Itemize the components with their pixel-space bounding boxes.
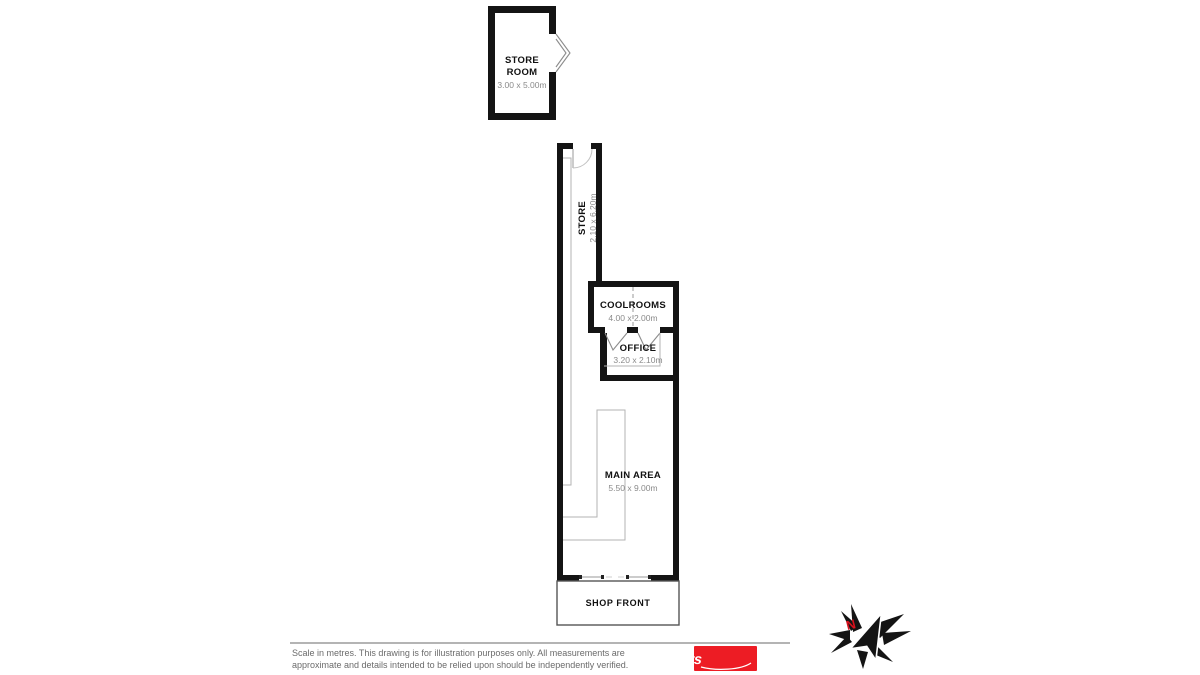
elders-logo-text: Elders [657,652,702,668]
store-dims: 2.10 x 6.20m [588,193,598,242]
store-room-label-line2: ROOM [507,67,538,78]
double-door-swing-icon [556,39,566,67]
disclaimer-line2: approximate and details intended to be r… [292,660,628,670]
double-door-swing-icon [556,34,570,72]
office-dims: 3.20 x 2.10m [613,355,662,365]
disclaimer-line1: Scale in metres. This drawing is for ill… [292,648,625,658]
coolrooms: COOLROOMS 4.00 x 2.00m [600,287,666,350]
main-area-label: MAIN AREA [605,470,661,481]
shop-front: SHOP FRONT [557,575,679,625]
store-labels: STORE 2.10 x 6.20m [577,193,598,242]
coolrooms-top-wall [588,281,679,287]
store-room-dims: 3.00 x 5.00m [497,80,546,90]
footer: Scale in metres. This drawing is for ill… [290,643,790,671]
wall-shelf-fixture [563,158,571,485]
store-label: STORE [577,201,588,235]
main-area: MAIN AREA 5.50 x 9.00m [563,410,661,540]
coolrooms-dims: 4.00 x 2.00m [608,313,657,323]
elders-logo: Elders [657,646,757,671]
right-wall [673,281,679,581]
office-bottom-wall [600,375,679,381]
compass-icon: N [829,604,911,669]
floorplan-canvas: STORE ROOM 3.00 x 5.00m STORE 2.10 x 6.2… [0,0,1200,675]
store-room-label-line1: STORE [505,55,539,66]
office-label: OFFICE [620,343,657,354]
door-swing-arc-icon [573,149,592,168]
shop-front-label: SHOP FRONT [586,598,651,608]
coolrooms-label: COOLROOMS [600,300,666,311]
main-area-dims: 5.50 x 9.00m [608,483,657,493]
store-room: STORE ROOM 3.00 x 5.00m [488,6,570,120]
floorplan-page: STORE ROOM 3.00 x 5.00m STORE 2.10 x 6.2… [0,0,1200,675]
left-wall [557,143,563,581]
